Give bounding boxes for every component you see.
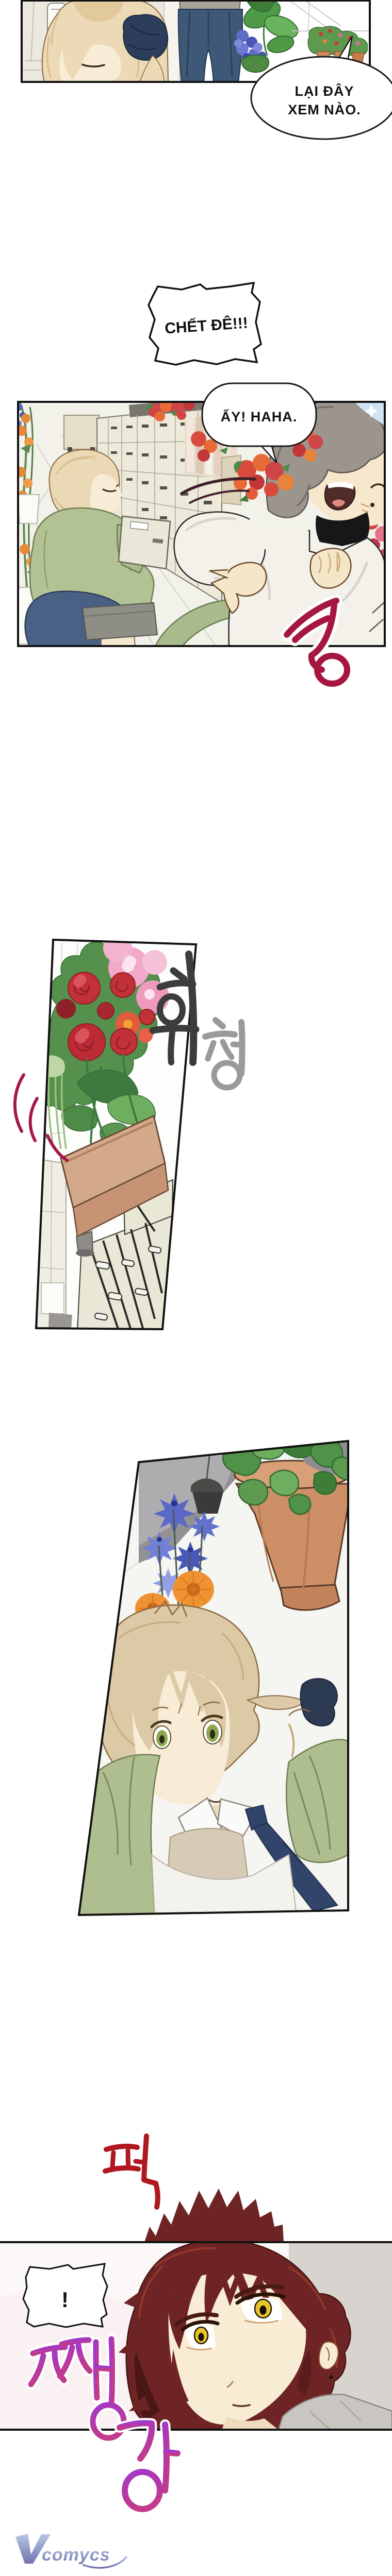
svg-text:LẠI ĐÂY: LẠI ĐÂY bbox=[295, 83, 354, 99]
svg-text:ẤY! HAHA.: ẤY! HAHA. bbox=[221, 409, 298, 425]
svg-text:XEM NÀO.: XEM NÀO. bbox=[288, 101, 361, 117]
svg-text:!: ! bbox=[61, 2287, 69, 2312]
svg-text:comycs: comycs bbox=[42, 2545, 110, 2565]
